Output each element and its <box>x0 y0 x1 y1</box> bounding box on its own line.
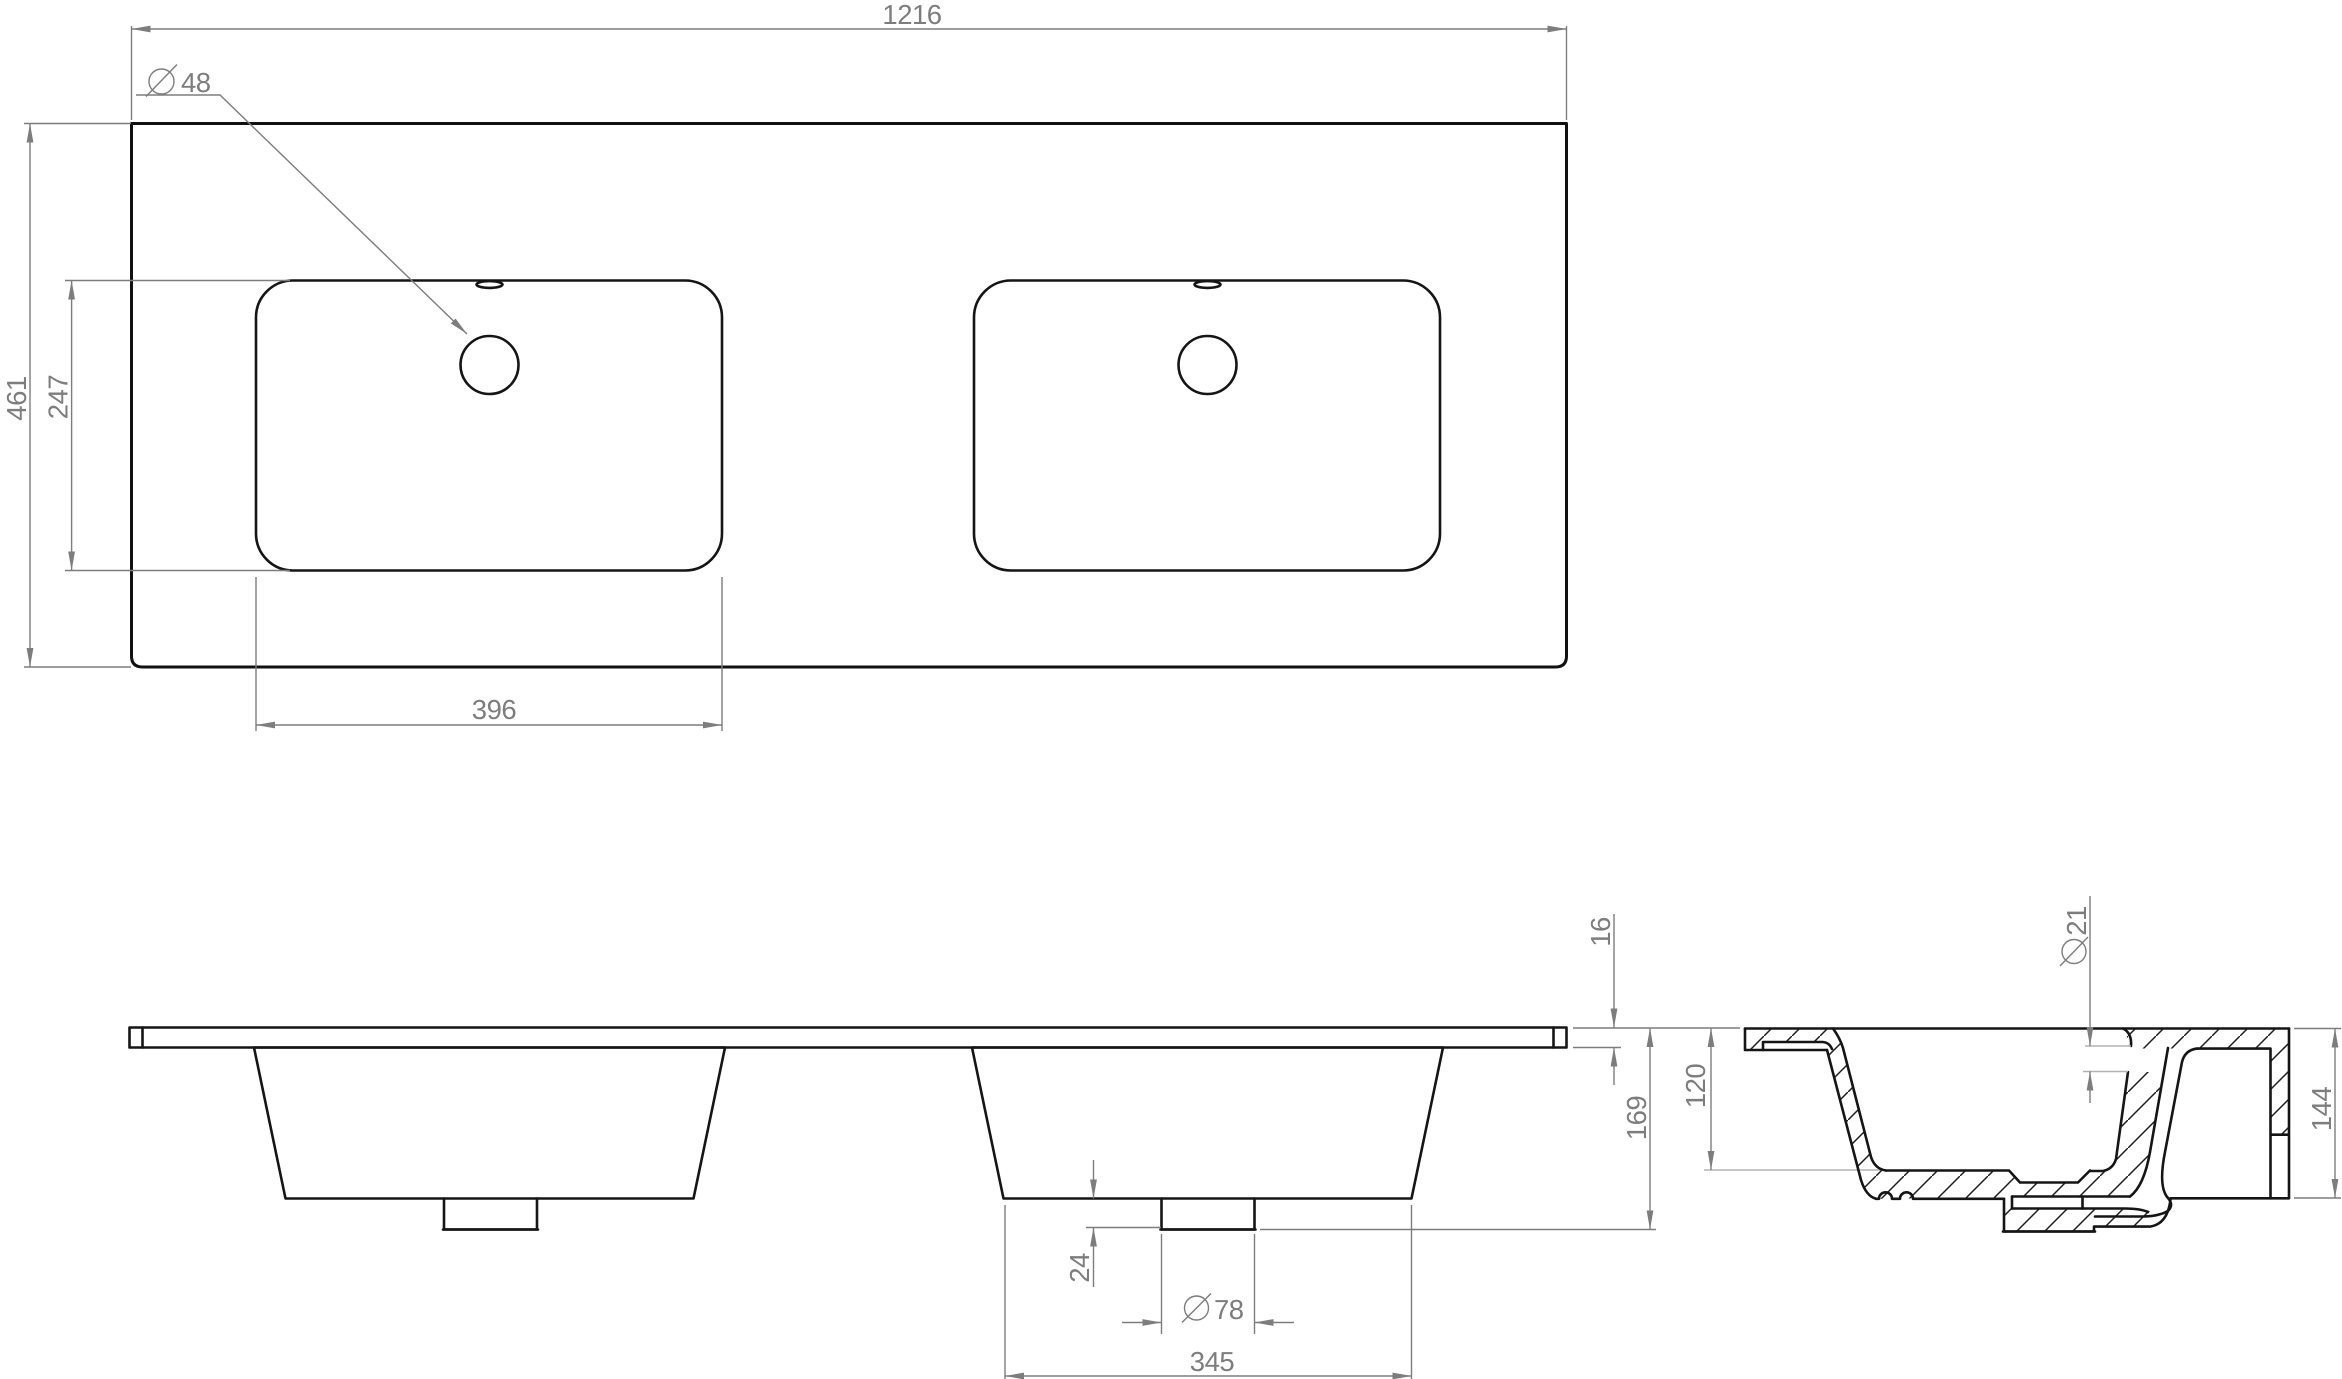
svg-text:120: 120 <box>1680 1064 1711 1109</box>
svg-text:345: 345 <box>1190 1346 1235 1377</box>
svg-text:247: 247 <box>43 375 74 419</box>
svg-text:21: 21 <box>2061 906 2092 936</box>
svg-text:461: 461 <box>1 376 32 420</box>
svg-text:169: 169 <box>1621 1096 1652 1140</box>
svg-text:396: 396 <box>472 694 517 725</box>
svg-text:24: 24 <box>1064 1253 1095 1283</box>
svg-text:16: 16 <box>1585 917 1616 947</box>
svg-text:78: 78 <box>1214 1294 1244 1325</box>
svg-text:144: 144 <box>2306 1087 2337 1132</box>
svg-text:48: 48 <box>181 67 211 98</box>
svg-text:1216: 1216 <box>882 0 941 30</box>
